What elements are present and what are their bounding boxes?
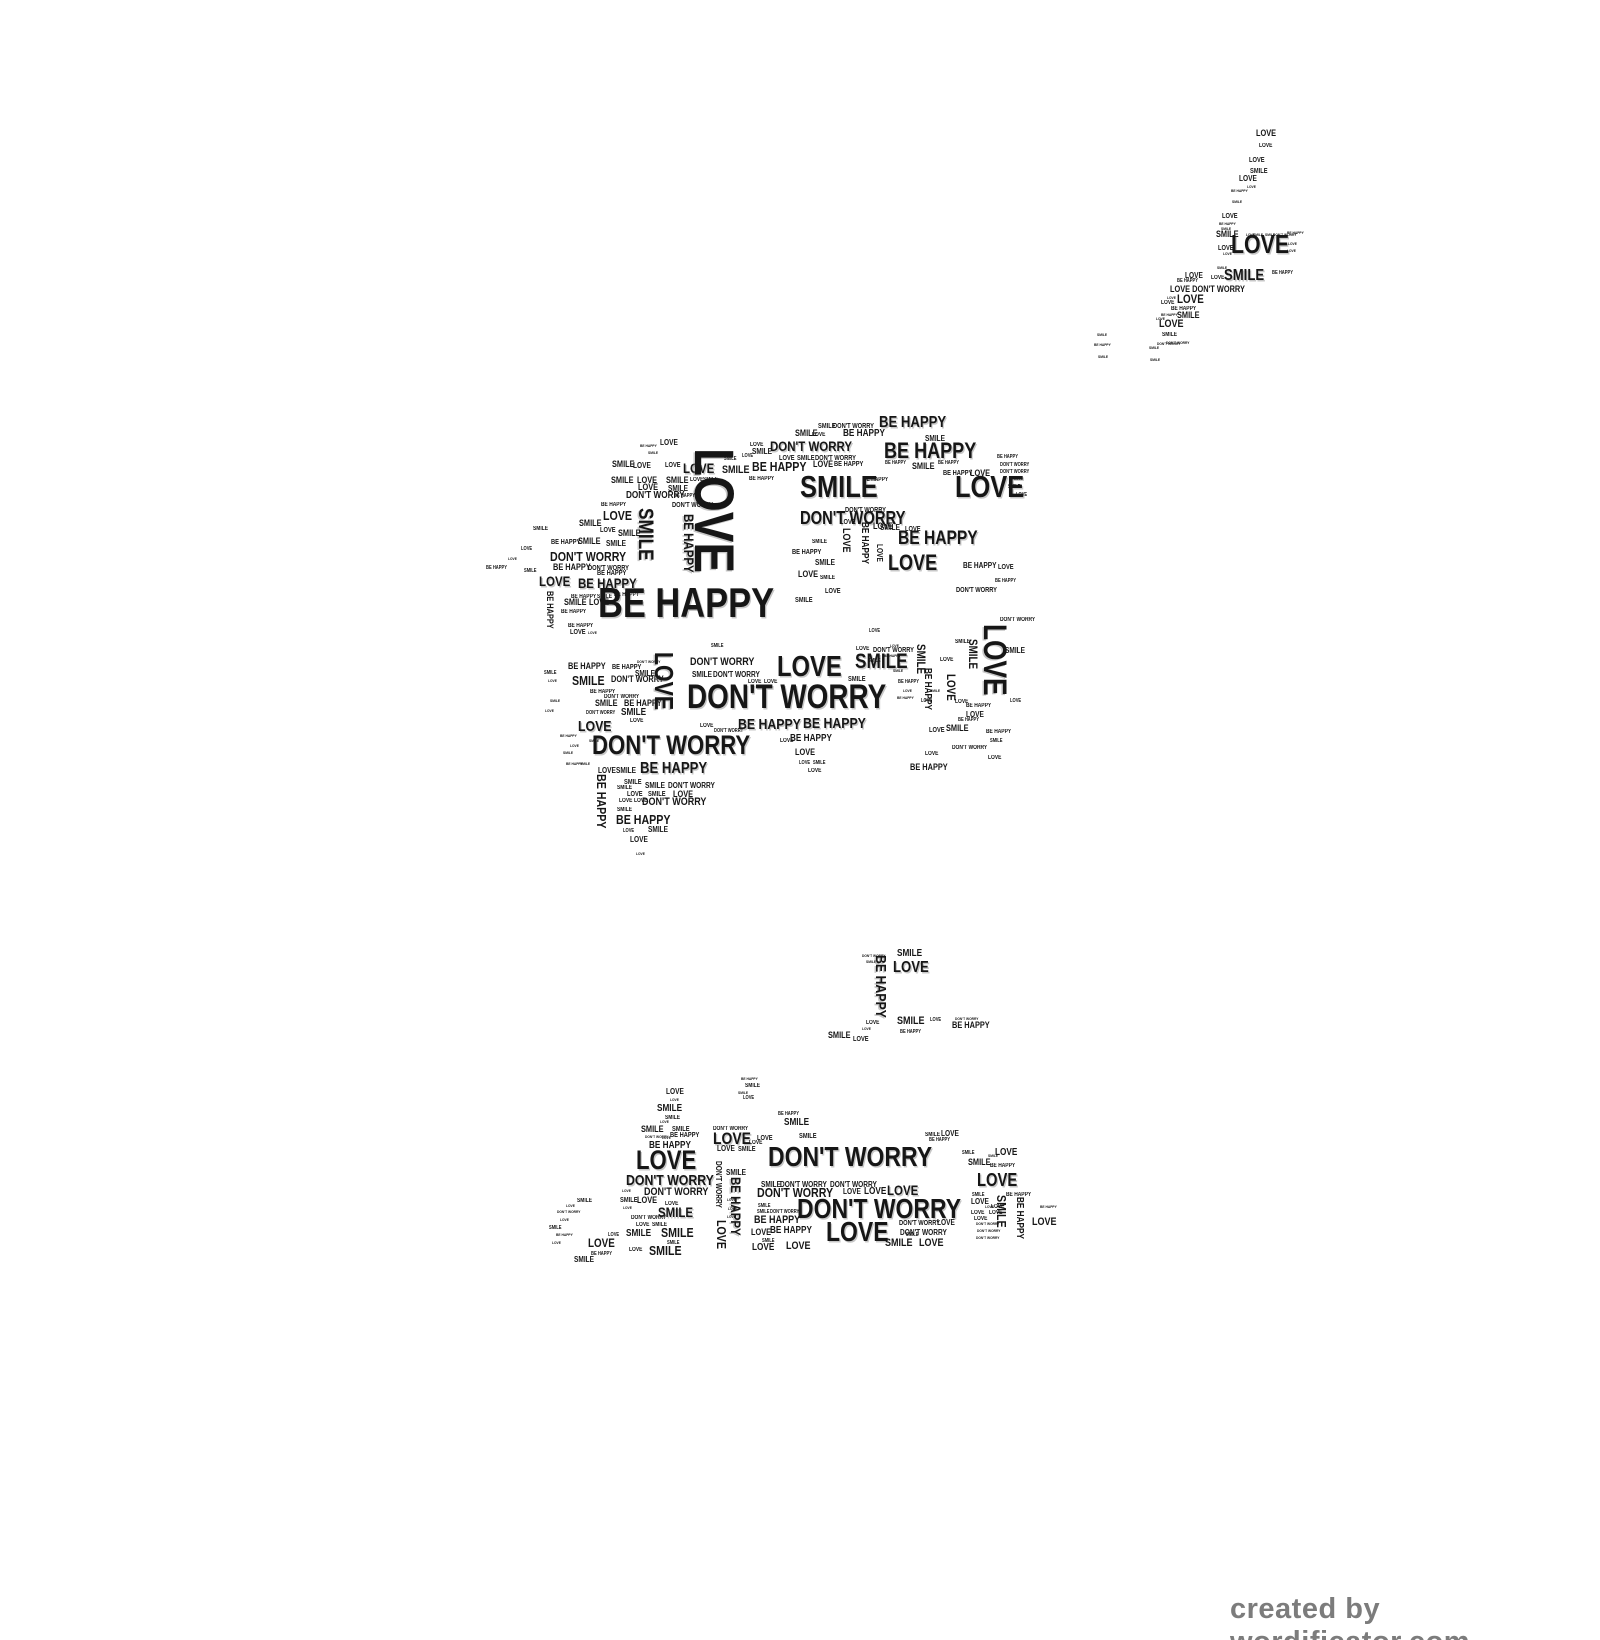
word: BE HAPPY	[790, 734, 832, 744]
word: LOVE	[1222, 213, 1238, 220]
word: SMILE	[897, 949, 922, 959]
word: LOVE	[866, 1020, 879, 1026]
word: SMILE	[657, 1104, 682, 1114]
word: BE HAPPY	[873, 955, 888, 1018]
word: BE HAPPY	[963, 562, 997, 570]
word: SMILE	[524, 569, 537, 574]
word: LOVE	[665, 462, 681, 469]
word: SMILE	[848, 676, 866, 683]
word: SMILE	[893, 669, 903, 673]
word: LOVE	[752, 1243, 774, 1253]
word: LOVE	[1032, 1217, 1057, 1228]
word: SMILE	[611, 476, 634, 485]
word: LOVE	[588, 1237, 615, 1249]
word: BE HAPPY	[898, 529, 978, 548]
word: SMILE	[726, 1169, 746, 1177]
word: BE HAPPY	[897, 696, 914, 700]
word: SMILE	[618, 529, 641, 538]
word: LOVE	[977, 1171, 1017, 1189]
word: LOVE	[813, 460, 833, 469]
word: LOVE	[552, 1241, 561, 1245]
word: SMILE	[667, 1241, 680, 1246]
word: SMILE	[955, 639, 970, 645]
word: SMILE	[930, 689, 940, 693]
word: LOVE	[955, 471, 1024, 502]
word: LOVE	[795, 748, 815, 757]
word: BE HAPPY	[995, 579, 1016, 584]
word: SMILE	[648, 826, 668, 834]
word: LOVE	[629, 1247, 642, 1253]
word: LOVE	[875, 544, 883, 562]
word: BE HAPPY	[770, 1226, 812, 1236]
word: LOVE	[619, 798, 632, 804]
word: LOVE	[940, 657, 953, 663]
word: SMILE	[757, 1210, 770, 1215]
word: LOVE	[1259, 143, 1272, 149]
word: BE HAPPY	[1094, 343, 1111, 347]
word: LOVE	[840, 528, 851, 553]
word: DON'T WORRY	[586, 711, 615, 716]
word: SMILE	[1149, 346, 1159, 350]
word: LOVE	[937, 1219, 955, 1227]
word: SMILE	[813, 761, 826, 766]
word: BE HAPPY	[803, 716, 866, 731]
word: SMILE	[812, 539, 827, 545]
word: LOVE	[930, 1018, 941, 1023]
word: LOVE	[995, 1148, 1017, 1158]
word: SMILE	[885, 1238, 913, 1249]
word: LOVE	[651, 652, 677, 710]
word: LOVE	[521, 547, 532, 552]
word: LOVE	[979, 624, 1011, 695]
word: LOVE	[623, 1206, 632, 1210]
word: BE HAPPY	[749, 476, 774, 482]
word: LOVE	[1010, 699, 1021, 704]
word: LOVE	[751, 1228, 771, 1237]
word: LOVE	[890, 644, 899, 648]
word: SMILE	[550, 699, 560, 703]
word: SMILE	[626, 1229, 651, 1239]
word: BE HAPPY	[741, 1077, 758, 1081]
word: LOVE	[637, 1196, 657, 1205]
word: LOVE	[700, 723, 713, 729]
word: LOVE	[921, 699, 932, 704]
word: SMILE	[1150, 358, 1160, 362]
word: LOVE	[1211, 275, 1224, 281]
word: LOVE	[798, 570, 818, 579]
word: SMILE	[549, 1226, 562, 1231]
word: SMILE	[738, 1146, 756, 1153]
word: LOVE	[998, 564, 1014, 571]
word: LOVE	[670, 1098, 679, 1102]
word: DON'T WORRY	[550, 550, 626, 563]
word: LOVE	[570, 629, 586, 636]
word: SMILE	[580, 762, 590, 766]
word: SMILE	[1224, 268, 1264, 284]
word: DON'T WORRY	[770, 1210, 799, 1215]
word: BE HAPPY	[884, 654, 901, 658]
word: LOVE	[715, 1220, 728, 1249]
word: BE HAPPY	[556, 1233, 573, 1237]
word: SMILE	[828, 1031, 851, 1040]
word: LOVE	[636, 1222, 649, 1228]
word: SMILE	[1097, 333, 1107, 337]
word: DON'T WORRY	[672, 502, 713, 509]
word: SMILE	[574, 1256, 594, 1264]
word: LOVE	[862, 1027, 871, 1031]
watermark-text: created by wordificator.com	[1230, 1593, 1600, 1640]
word: SMILE	[577, 1198, 592, 1204]
word: SMILE	[990, 739, 1003, 744]
word: BE HAPPY	[859, 522, 869, 564]
word: DON'T WORRY	[768, 1143, 932, 1171]
word: DON'T WORRY	[1000, 617, 1035, 623]
word: SMILE	[968, 1158, 991, 1167]
word: LOVE	[588, 631, 597, 635]
word: DON'T WORRY	[977, 1229, 1000, 1233]
word: SMILE	[795, 597, 813, 604]
word: BE HAPPY	[640, 444, 657, 448]
word: SMILE	[897, 1016, 925, 1027]
word: BE HAPPY	[640, 761, 707, 777]
word: DON'T WORRY	[668, 782, 715, 790]
word: BE HAPPY	[1272, 271, 1293, 276]
word: BE HAPPY	[952, 1021, 990, 1030]
word: LOVE	[825, 588, 841, 595]
word: BE HAPPY	[674, 494, 695, 499]
word: BE HAPPY	[598, 582, 774, 624]
word: LOVE	[1287, 249, 1296, 253]
word: LOVE	[660, 439, 678, 447]
word: LOVE	[1249, 157, 1265, 164]
word: BE HAPPY	[885, 461, 906, 466]
word: SMILE	[595, 699, 618, 708]
word: SMILE	[658, 1205, 693, 1219]
word: SMILE	[606, 540, 626, 548]
word: LOVE	[893, 960, 929, 976]
word: LOVE	[603, 509, 632, 522]
word: SMILE	[620, 1197, 638, 1204]
word: BE HAPPY	[591, 1252, 612, 1257]
word: DON'T WORRY	[1000, 463, 1029, 468]
word: BE HAPPY	[966, 703, 991, 709]
word: SMILE	[820, 575, 835, 581]
word: LOVE	[1239, 175, 1257, 183]
word: SMILE	[906, 1233, 919, 1238]
word: BE HAPPY	[986, 729, 1011, 735]
word: BE HAPPY	[879, 415, 946, 431]
word: LOVE	[929, 727, 945, 734]
word: BE HAPPY	[568, 662, 606, 671]
word: SMILE	[612, 460, 635, 469]
word: DON'T WORRY	[642, 797, 706, 808]
word: SMILE	[641, 1125, 664, 1134]
word: LOVE	[1159, 319, 1184, 330]
word: BE HAPPY	[553, 563, 591, 572]
word: LOVE	[903, 689, 912, 693]
word: DON'T WORRY	[557, 1210, 580, 1214]
word: BE HAPPY	[682, 514, 696, 573]
word: BE HAPPY	[1231, 189, 1248, 193]
word: LOVE	[808, 768, 821, 774]
word: LOVE	[727, 1198, 736, 1202]
word-art-canvas: LOVELOVELOVESMILELOVELOVEBE HAPPYSMILELO…	[0, 0, 1600, 1640]
word: LOVE	[560, 1218, 569, 1222]
word: BE HAPPY	[1287, 231, 1304, 235]
word: SMILE	[745, 1083, 760, 1089]
word: BE HAPPY	[884, 440, 976, 462]
word: LOVE	[840, 519, 856, 526]
word: SMILE	[868, 659, 881, 664]
word: SMILE	[621, 708, 646, 718]
word: LOVE	[545, 709, 554, 713]
word: LOVE	[945, 674, 957, 701]
word: SMILE	[1162, 332, 1177, 338]
word: DON'T WORRY	[687, 680, 886, 714]
word: LOVE	[623, 829, 634, 834]
word: LOVE	[786, 1241, 811, 1252]
word: BE HAPPY	[898, 680, 919, 685]
word: LOVE	[919, 1238, 944, 1249]
word: SMILE	[1232, 200, 1242, 204]
word: LOVE	[812, 432, 825, 438]
word: SMILE	[752, 448, 772, 456]
word: LOVE	[717, 1145, 735, 1153]
word: BE HAPPY	[1177, 279, 1198, 284]
word: LOVE	[1177, 293, 1204, 305]
word: LOVE	[888, 552, 937, 574]
word: DON'T WORRY	[899, 1220, 940, 1227]
word: LOVE	[1288, 242, 1297, 246]
word: LOVE	[777, 653, 842, 682]
word: SMILE	[616, 767, 636, 775]
word: LOVE	[727, 1215, 736, 1219]
word: BE HAPPY	[938, 461, 959, 466]
word: LOVE	[826, 1218, 889, 1246]
word: SMILE	[579, 519, 602, 528]
word: BE HAPPY	[551, 539, 580, 546]
word: BE HAPPY	[560, 734, 577, 738]
word: BE HAPPY	[561, 609, 586, 615]
word: SMILE	[784, 1118, 809, 1128]
word: DON'T WORRY	[956, 587, 997, 594]
word: SMILE	[533, 526, 548, 532]
word: BE HAPPY	[1040, 1205, 1057, 1209]
word: LOVE	[633, 462, 651, 470]
word: LOVE	[869, 629, 880, 634]
word: BE HAPPY	[1014, 1197, 1024, 1239]
word: DON'T WORRY	[1157, 342, 1180, 346]
word: LOVE	[1231, 231, 1289, 257]
word: SMILE	[564, 598, 587, 607]
word: LOVE	[856, 646, 869, 652]
word: LOVE	[666, 1088, 684, 1096]
word: LOVE	[566, 1204, 575, 1208]
word: DON'T WORRY	[976, 1222, 999, 1226]
word: BE HAPPY	[545, 591, 554, 629]
word: BE HAPPY	[595, 774, 608, 829]
word: DON'T WORRY	[690, 657, 754, 668]
word: BE HAPPY	[929, 1138, 950, 1143]
word: LOVE	[570, 744, 579, 748]
word: LOVE	[627, 791, 643, 798]
word: BE HAPPY	[910, 763, 948, 772]
word: DON'T WORRY	[770, 439, 852, 453]
word: SMILE	[799, 1133, 817, 1140]
word: LOVE	[636, 852, 645, 856]
word: SMILE	[815, 559, 835, 567]
word: SMILE	[762, 1239, 775, 1244]
word: LOVE	[1256, 129, 1276, 138]
word: LOVE	[925, 751, 938, 757]
word: LOVE	[799, 761, 810, 766]
word: LOVE	[988, 755, 1001, 761]
word: LOVE	[508, 557, 517, 561]
word: BE HAPPY	[834, 461, 863, 468]
word: SMILE	[589, 739, 599, 743]
word: LOVE	[853, 1036, 869, 1043]
word: BE HAPPY	[863, 477, 888, 483]
word: SMILE	[645, 782, 665, 790]
word: BE HAPPY	[900, 1030, 921, 1035]
word: BE HAPPY	[670, 1132, 699, 1139]
word: LOVE	[622, 1189, 631, 1193]
word: SMILE	[572, 674, 605, 687]
word: SMILE	[962, 1151, 975, 1156]
word: DON'T WORRY	[714, 1161, 722, 1208]
word: DON'T WORRY	[976, 1236, 999, 1240]
word: DON'T WORRY	[592, 732, 750, 759]
word: SMILE	[988, 1154, 998, 1158]
word: SMILE	[946, 724, 969, 733]
word: LOVE	[630, 718, 643, 724]
word: SMILE	[1005, 647, 1025, 655]
word: BE HAPPY	[997, 455, 1018, 460]
word: SMILE	[912, 462, 935, 471]
word: LOVE	[1247, 185, 1256, 189]
word: SMILE	[1098, 355, 1108, 359]
word: LOVE	[636, 1147, 696, 1174]
word: LOVE	[873, 522, 893, 531]
word: SMILE	[711, 644, 724, 649]
word: BE HAPPY	[792, 549, 821, 556]
word: LOVE	[539, 574, 570, 588]
word: LOVE	[548, 679, 557, 683]
word: LOVE	[600, 527, 616, 534]
word: BE HAPPY	[958, 718, 979, 723]
word: SMILE	[578, 537, 601, 546]
word: DON'T WORRY	[952, 745, 987, 751]
word: LOVE	[630, 836, 648, 844]
word: SMILE	[661, 1226, 694, 1239]
word: BE HAPPY	[990, 1163, 1015, 1169]
word: BE HAPPY	[752, 460, 807, 473]
word: LOVE	[743, 1096, 754, 1101]
word: BE HAPPY	[486, 566, 507, 571]
word: LOVE	[728, 1207, 737, 1211]
word: SMILE	[648, 451, 658, 455]
word: SMILE	[563, 751, 573, 755]
word: SMILE	[544, 671, 557, 676]
